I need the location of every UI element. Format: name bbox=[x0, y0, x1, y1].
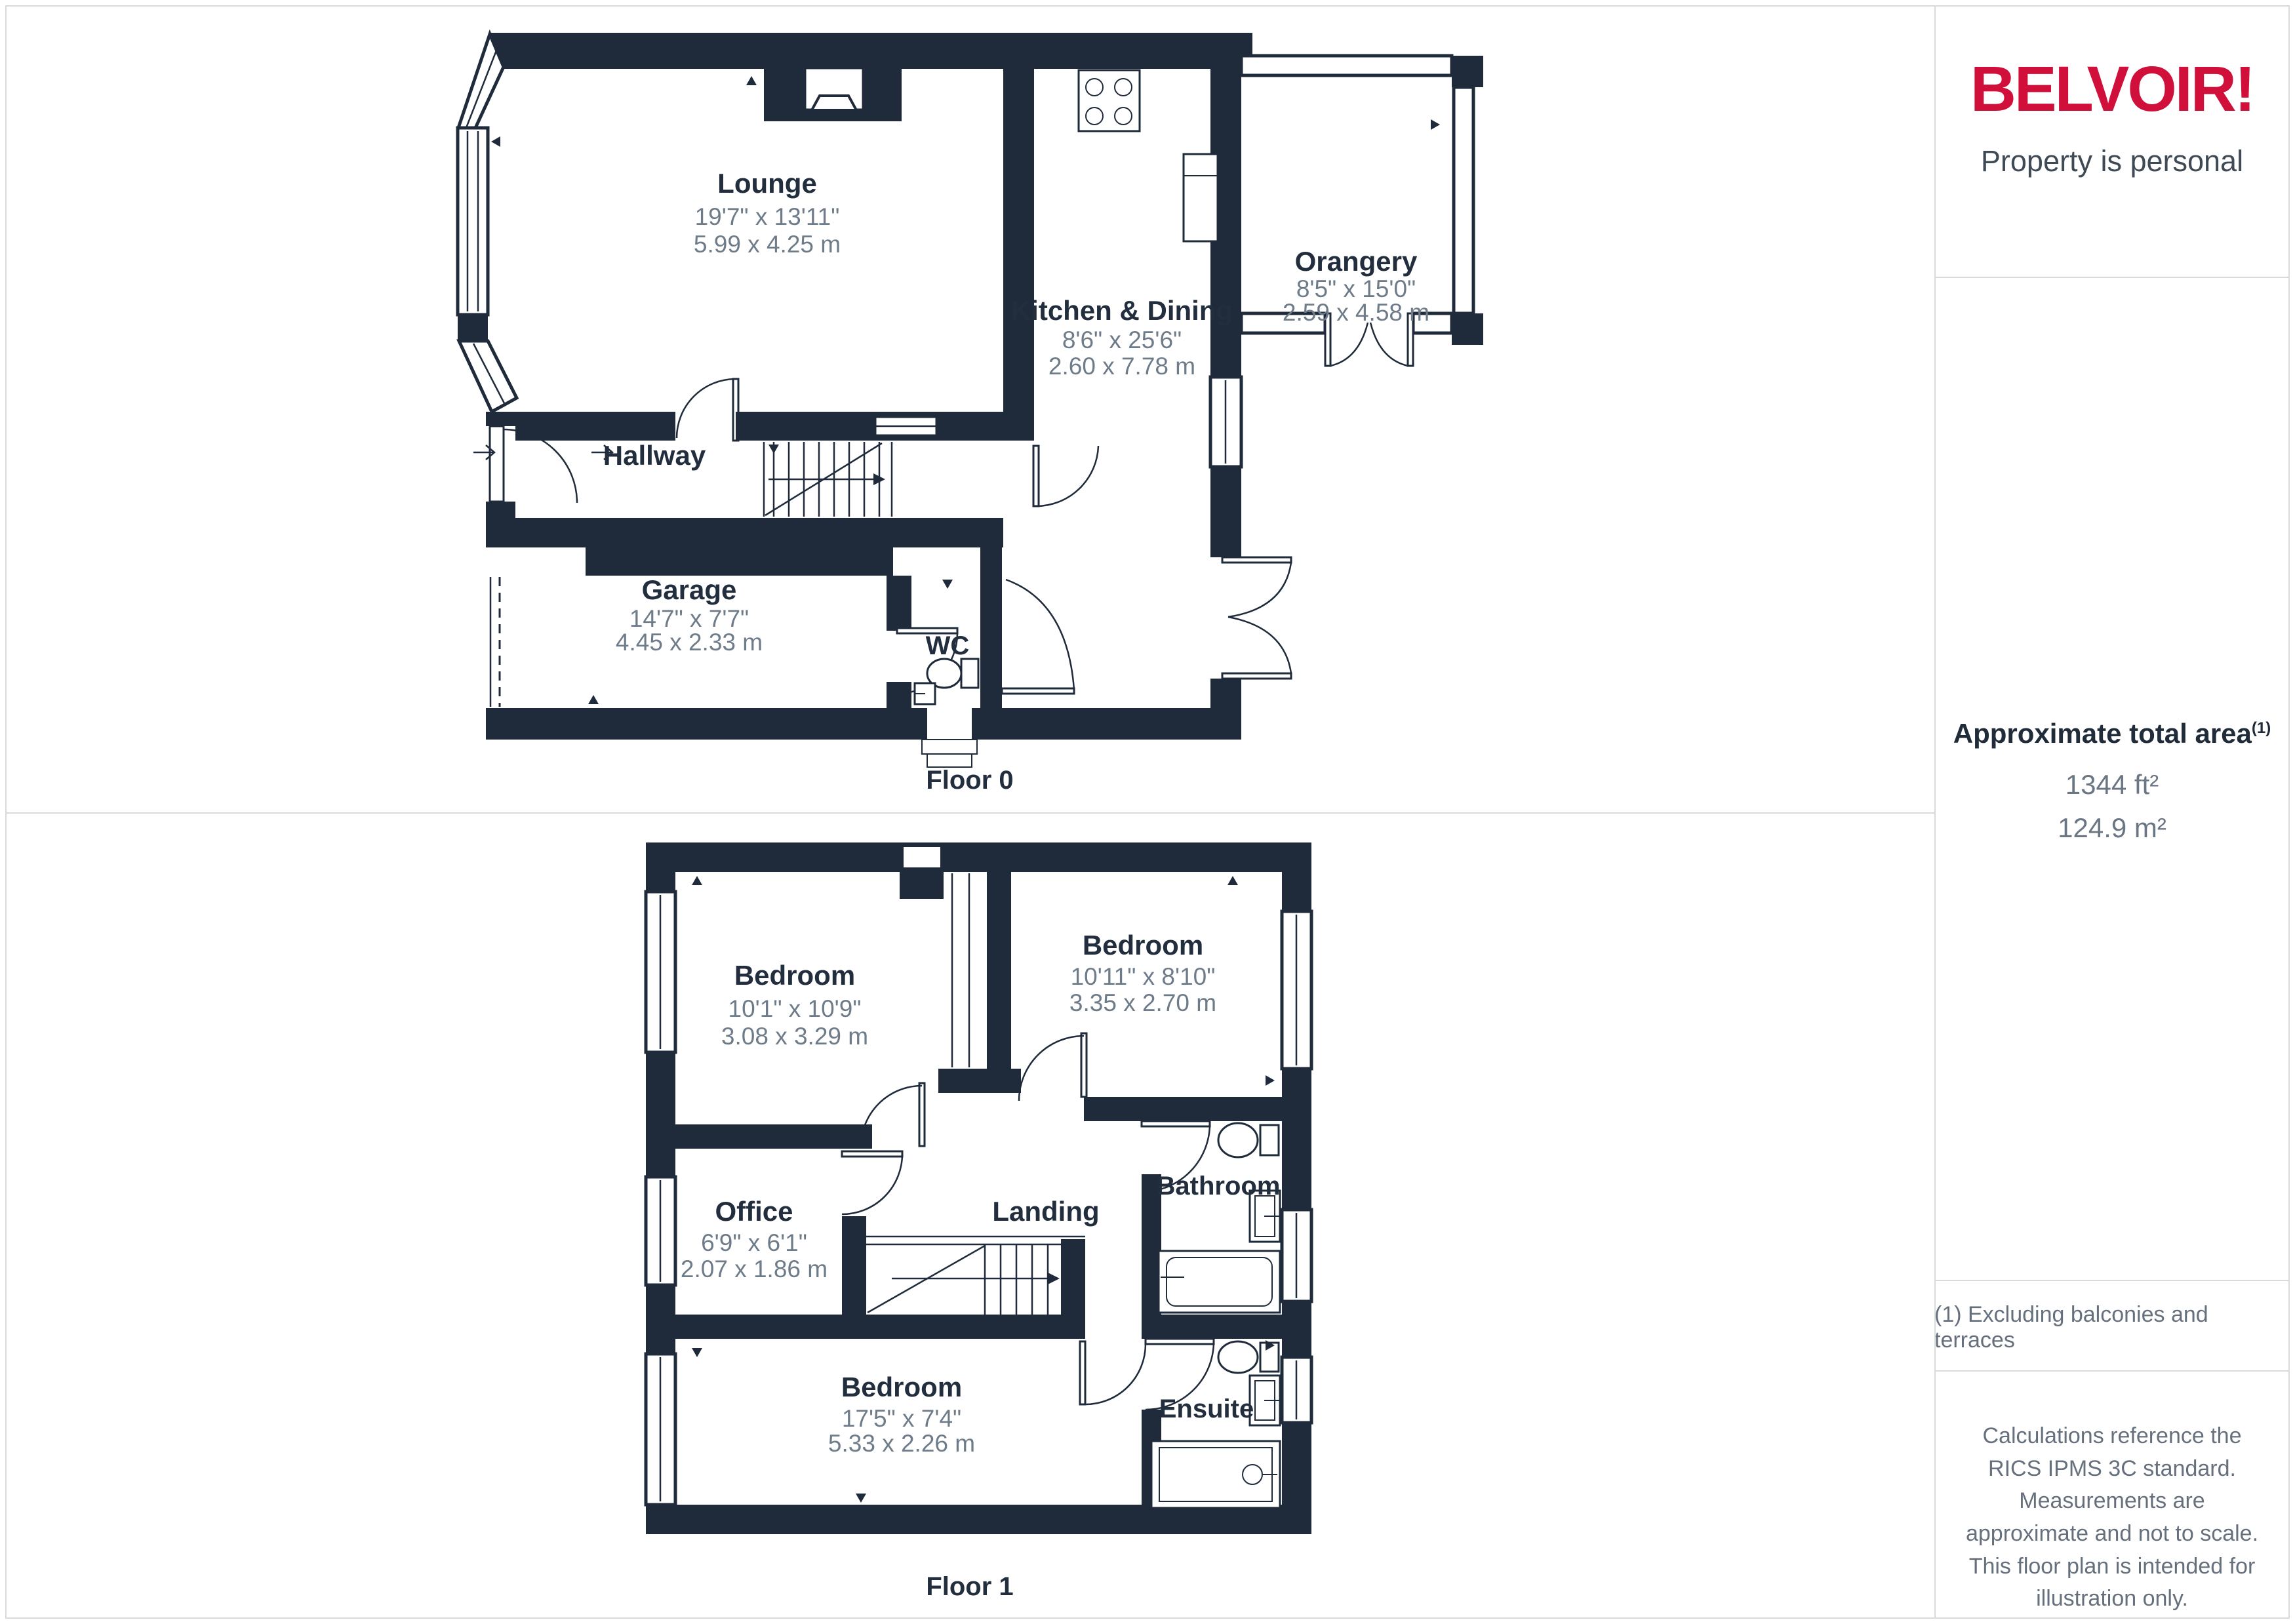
landing-label: Landing bbox=[992, 1196, 1099, 1227]
wc-label: WC bbox=[926, 631, 970, 660]
garage-size-metric: 4.45 x 2.33 m bbox=[616, 629, 763, 656]
hallway-label: Hallway bbox=[603, 440, 706, 471]
bedroom-main-size-metric: 5.33 x 2.26 m bbox=[828, 1430, 975, 1457]
office-size-imperial: 6'9" x 6'1" bbox=[701, 1229, 807, 1256]
garage-label: Garage bbox=[642, 574, 737, 605]
bedroom-front-label: Bedroom bbox=[734, 960, 855, 991]
total-area-ft: 1344 ft² bbox=[2065, 769, 2159, 801]
bedroom-back-size-metric: 3.35 x 2.70 m bbox=[1069, 989, 1216, 1016]
total-area-title: Approximate total area(1) bbox=[1953, 718, 2271, 749]
outer-border-top bbox=[5, 5, 2290, 7]
outer-border-bottom bbox=[5, 1617, 2290, 1619]
bedroom-front-size-imperial: 10'1" x 10'9" bbox=[728, 995, 862, 1022]
lounge-size-metric: 5.99 x 4.25 m bbox=[694, 231, 841, 258]
ensuite-sink bbox=[1250, 1376, 1280, 1425]
lounge-label: Lounge bbox=[717, 168, 817, 199]
kitchen-sink-unit bbox=[1184, 154, 1218, 241]
shower bbox=[1151, 1441, 1280, 1508]
brand-tagline: Property is personal bbox=[1934, 144, 2290, 178]
staircase bbox=[764, 442, 892, 517]
bedroom-back-size-imperial: 10'11" x 8'10" bbox=[1071, 963, 1216, 990]
orangery-size-imperial: 8'5" x 15'0" bbox=[1296, 275, 1416, 302]
wc-sink bbox=[915, 683, 935, 704]
sidebar-divider bbox=[1934, 5, 1936, 1619]
kitchen-size-imperial: 8'6" x 25'6" bbox=[1062, 327, 1182, 353]
bedroom-back-label: Bedroom bbox=[1083, 930, 1203, 961]
office-label: Office bbox=[715, 1196, 793, 1227]
bathroom-label: Bathroom bbox=[1157, 1172, 1281, 1200]
lounge-size-imperial: 19'7" x 13'11" bbox=[695, 203, 840, 230]
kitchen-label: Kitchen & Dining bbox=[1011, 295, 1233, 326]
area-footnote: (1) Excluding balconies and terraces bbox=[1934, 1280, 2290, 1376]
sidebar-footnote-divider bbox=[1934, 1280, 2290, 1281]
garage-size-imperial: 14'7" x 7'7" bbox=[629, 605, 749, 632]
sidebar: BELVOIR! Property is personal Approximat… bbox=[1934, 5, 2290, 1619]
bathtub bbox=[1159, 1251, 1280, 1313]
sidebar-logo-divider bbox=[1934, 277, 2290, 278]
floor1-caption: Floor 1 bbox=[5, 1572, 1934, 1602]
floorplan-page: Lounge 19'7" x 13'11" 5.99 x 4.25 m Kitc… bbox=[0, 0, 2295, 1624]
total-area-section: Approximate total area(1) 1344 ft² 124.9… bbox=[1934, 277, 2290, 1285]
disclaimer-text: Calculations reference the RICS IPMS 3C … bbox=[1964, 1420, 2260, 1615]
office-size-metric: 2.07 x 1.86 m bbox=[681, 1256, 828, 1282]
orangery-label: Orangery bbox=[1295, 246, 1418, 277]
floor0-caption: Floor 0 bbox=[5, 766, 1934, 795]
floors-divider bbox=[5, 812, 1934, 814]
sidebar-disclaimer-divider bbox=[1934, 1370, 2290, 1372]
floor0-walls bbox=[458, 33, 1291, 767]
floor1-panel: Bedroom 10'1" x 10'9" 3.08 x 3.29 m Bedr… bbox=[5, 813, 1934, 1619]
orangery-size-metric: 2.59 x 4.58 m bbox=[1283, 299, 1429, 326]
bathroom-toilet bbox=[1218, 1123, 1279, 1157]
floor0-panel: Lounge 19'7" x 13'11" 5.99 x 4.25 m Kitc… bbox=[5, 5, 1934, 813]
bedroom-front-size-metric: 3.08 x 3.29 m bbox=[721, 1023, 868, 1050]
belvoir-logo: BELVOIR! bbox=[1934, 52, 2290, 126]
total-area-m: 124.9 m² bbox=[2058, 812, 2166, 844]
disclaimer-section: Calculations reference the RICS IPMS 3C … bbox=[1934, 1376, 2290, 1624]
kitchen-hob bbox=[1079, 70, 1140, 131]
bedroom-main-label: Bedroom bbox=[841, 1372, 962, 1402]
staircase bbox=[866, 1237, 1085, 1315]
kitchen-size-metric: 2.60 x 7.78 m bbox=[1048, 353, 1195, 380]
footnote-marker: (1) bbox=[2252, 719, 2271, 737]
ensuite-label: Ensuite bbox=[1159, 1395, 1254, 1423]
outer-border-right bbox=[2288, 5, 2290, 1619]
bedroom-main-size-imperial: 17'5" x 7'4" bbox=[842, 1405, 961, 1432]
floor0-plan: Lounge 19'7" x 13'11" 5.99 x 4.25 m Kitc… bbox=[5, 5, 1934, 813]
floor1-plan: Bedroom 10'1" x 10'9" 3.08 x 3.29 m Bedr… bbox=[5, 813, 1934, 1619]
